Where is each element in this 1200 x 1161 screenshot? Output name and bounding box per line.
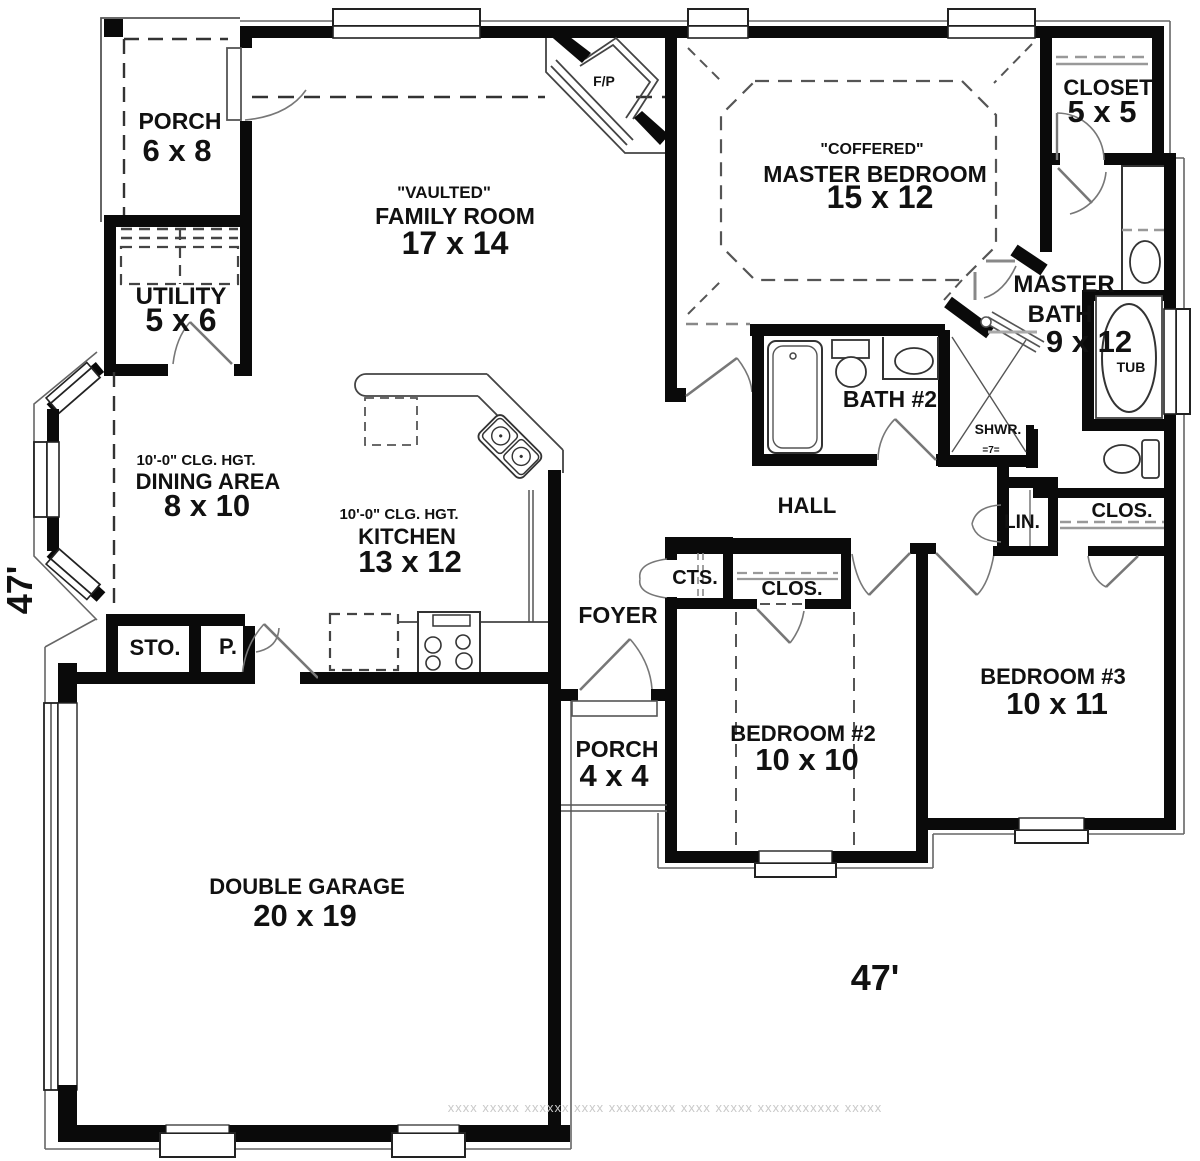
svg-text:47': 47' xyxy=(0,566,40,615)
svg-text:PORCH: PORCH xyxy=(138,108,221,134)
svg-text:15 x 12: 15 x 12 xyxy=(827,179,934,215)
svg-text:xxxx xxxxx xxxxxx xxxx xxxxxxx: xxxx xxxxx xxxxxx xxxx xxxxxxxxx xxxx xx… xyxy=(448,1100,882,1115)
svg-text:F/P: F/P xyxy=(593,73,615,89)
svg-text:CTS.: CTS. xyxy=(672,567,718,589)
svg-text:"VAULTED": "VAULTED" xyxy=(397,183,491,202)
svg-text:SHWR.: SHWR. xyxy=(975,421,1022,437)
svg-text:5 x 6: 5 x 6 xyxy=(145,302,216,338)
svg-text:BATH #2: BATH #2 xyxy=(843,386,937,412)
svg-text:CLOS.: CLOS. xyxy=(761,578,822,600)
svg-text:FOYER: FOYER xyxy=(578,602,658,628)
svg-text:10 x 10: 10 x 10 xyxy=(755,742,858,777)
svg-text:13 x 12: 13 x 12 xyxy=(358,544,461,579)
svg-text:STO.: STO. xyxy=(130,635,181,660)
svg-text:6 x 8: 6 x 8 xyxy=(143,133,212,168)
svg-text:8 x 10: 8 x 10 xyxy=(164,488,250,523)
svg-text:P.: P. xyxy=(219,634,237,659)
svg-text:5 x 5: 5 x 5 xyxy=(1068,94,1137,129)
svg-text:9 x 12: 9 x 12 xyxy=(1046,324,1132,359)
svg-text:17 x 14: 17 x 14 xyxy=(402,225,509,261)
svg-text:HALL: HALL xyxy=(778,493,837,518)
svg-text:CLOS.: CLOS. xyxy=(1091,500,1152,522)
svg-text:4 x 4: 4 x 4 xyxy=(580,758,650,793)
svg-text:MASTER: MASTER xyxy=(1013,271,1114,298)
svg-text:DOUBLE GARAGE: DOUBLE GARAGE xyxy=(209,874,405,899)
svg-text:10 x 11: 10 x 11 xyxy=(1006,686,1108,721)
svg-text:10'-0" CLG. HGT.: 10'-0" CLG. HGT. xyxy=(339,506,458,523)
svg-text:LIN.: LIN. xyxy=(1004,512,1040,533)
svg-text:20 x 19: 20 x 19 xyxy=(253,898,356,933)
svg-text:TUB: TUB xyxy=(1117,359,1146,375)
svg-text:10'-0" CLG. HGT.: 10'-0" CLG. HGT. xyxy=(136,452,255,469)
svg-text:=7=: =7= xyxy=(982,445,999,456)
svg-text:"COFFERED": "COFFERED" xyxy=(820,141,923,158)
svg-text:47': 47' xyxy=(851,957,900,998)
